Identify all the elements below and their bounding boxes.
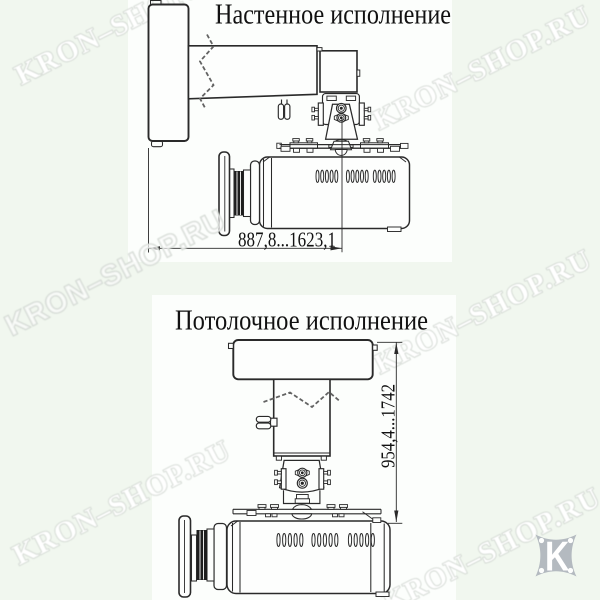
svg-text:Потолочное исполнение: Потолочное исполнение <box>175 305 428 337</box>
svg-text:Настенное исполнение: Настенное исполнение <box>215 0 451 31</box>
svg-text:887,8...1623,1: 887,8...1623,1 <box>238 228 336 252</box>
svg-text:K: K <box>545 534 570 580</box>
svg-text:954,4...1742: 954,4...1742 <box>378 384 400 468</box>
